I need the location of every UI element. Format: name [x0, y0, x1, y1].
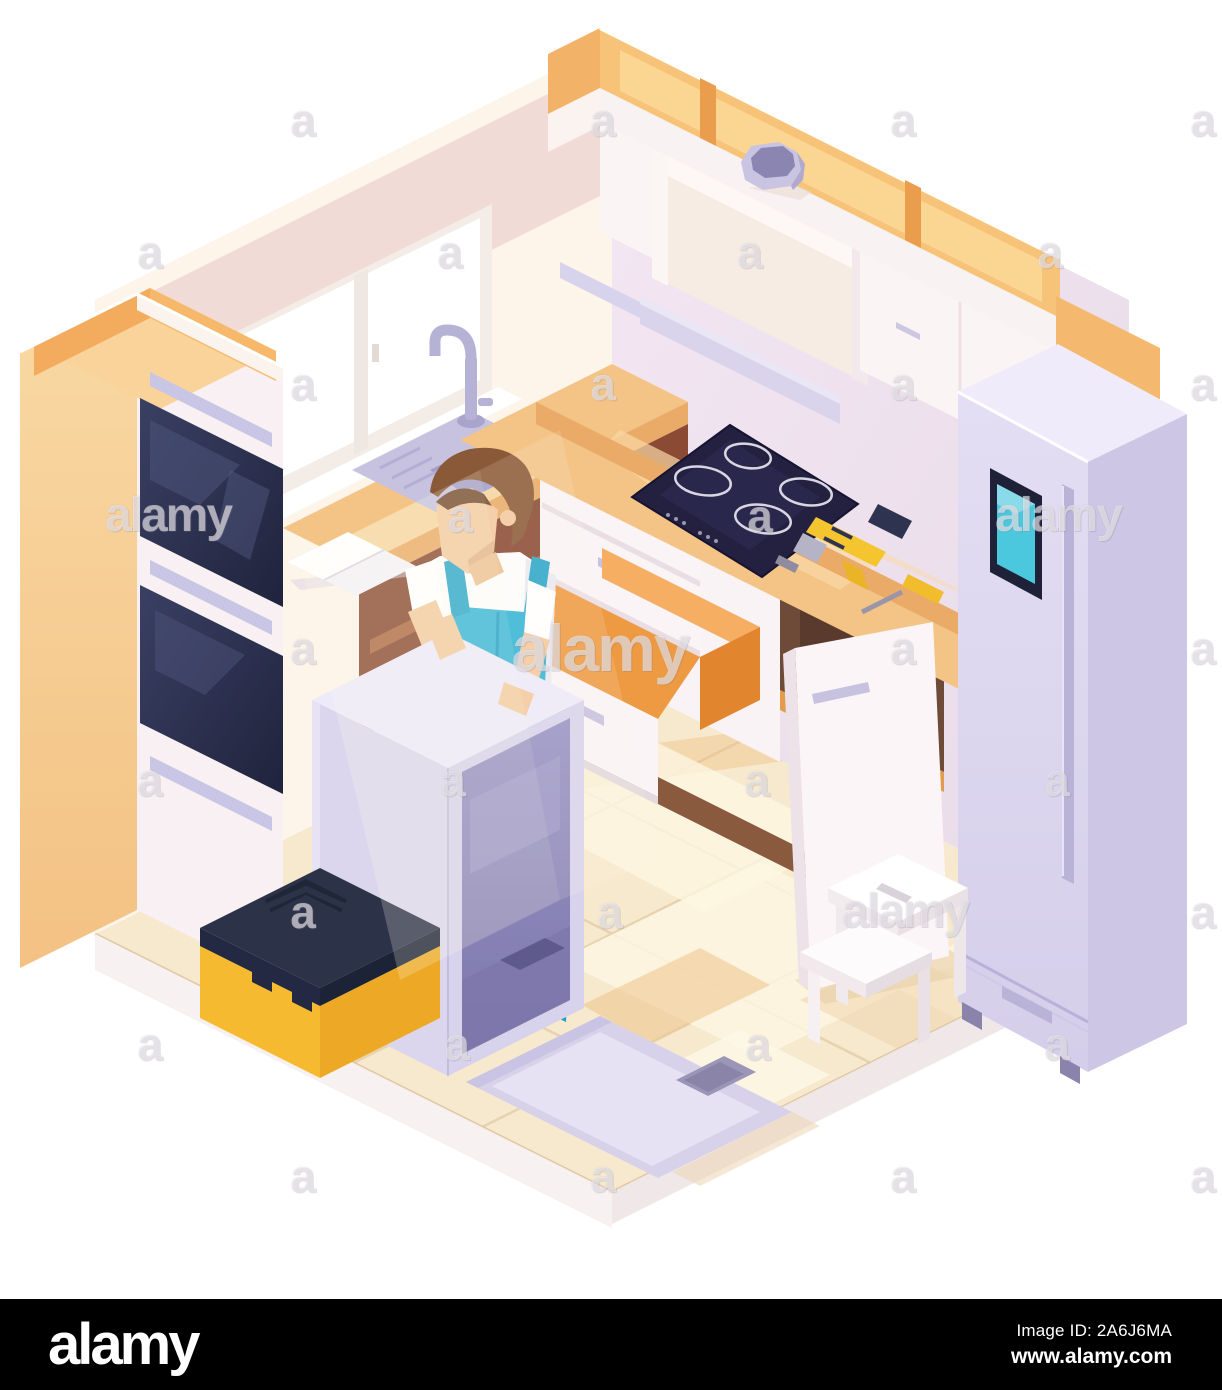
stock-image-preview: aaaaaaaaaaaaalamyaaalamyaalamyaaaaaaaaal… [0, 0, 1222, 1390]
image-id: Image ID: 2A6J6MA [1011, 1321, 1172, 1341]
footer-bar: alamy Image ID: 2A6J6MA www.alamy.com [0, 1299, 1222, 1390]
footer-meta: Image ID: 2A6J6MA www.alamy.com [1011, 1321, 1172, 1369]
oven-cabinet [20, 288, 283, 983]
window-mullion [354, 269, 368, 455]
window-handle [372, 344, 379, 362]
alamy-logo: alamy [48, 1316, 197, 1374]
alamy-url: www.alamy.com [1011, 1345, 1172, 1369]
fridge [958, 344, 1187, 1084]
kitchen-illustration [0, 0, 1222, 1299]
